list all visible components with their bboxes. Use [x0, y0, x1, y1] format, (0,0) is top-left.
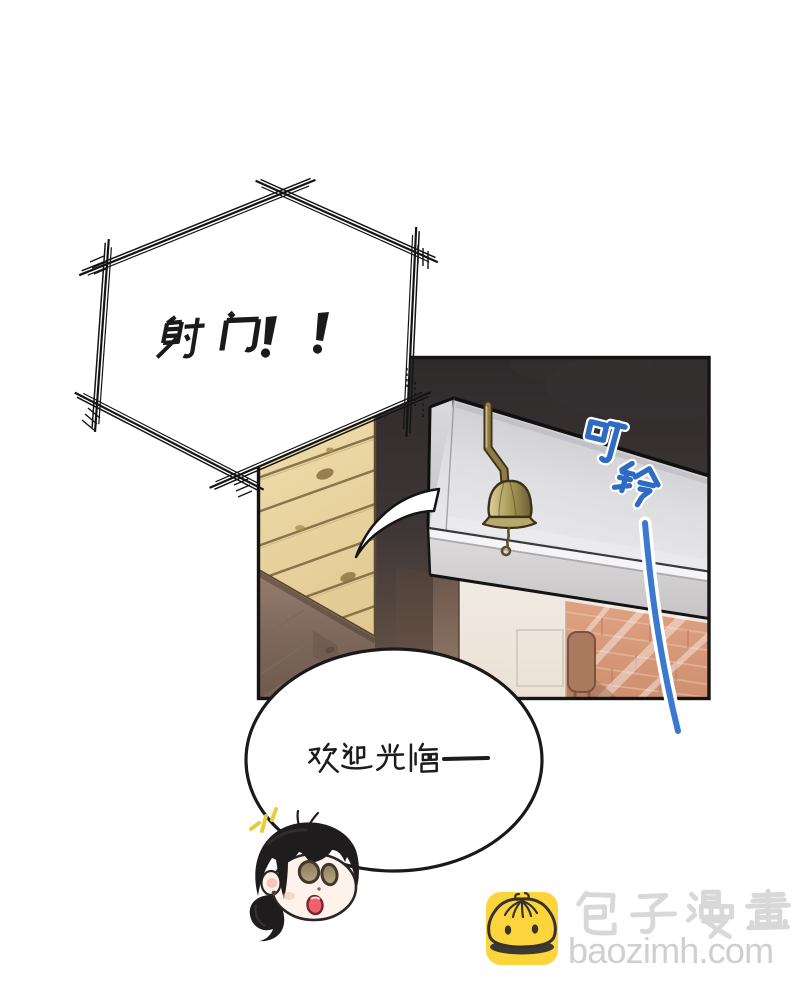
svg-text:baozimh.com: baozimh.com	[568, 930, 773, 971]
